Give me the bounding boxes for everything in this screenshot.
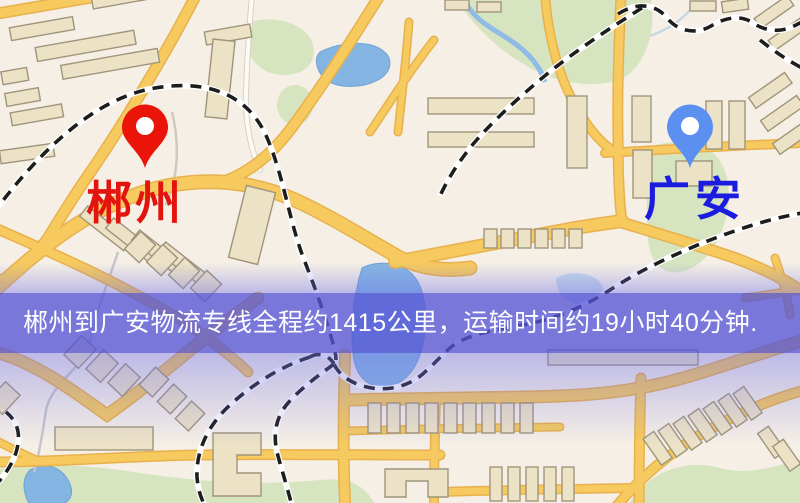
map-screenshot: 郴州到广安物流专线全程约1415公里，运输时间约19小时40分钟. 郴州 广安 [0, 0, 800, 503]
route-info-banner: 郴州到广安物流专线全程约1415公里，运输时间约19小时40分钟. [0, 293, 800, 353]
origin-pin-icon[interactable] [119, 104, 171, 170]
map-image [0, 0, 800, 503]
destination-pin-icon[interactable] [664, 104, 716, 170]
route-info-text: 郴州到广安物流专线全程约1415公里，运输时间约19小时40分钟. [23, 309, 758, 337]
origin-label: 郴州 [86, 181, 184, 227]
destination-label: 广安 [644, 177, 746, 223]
